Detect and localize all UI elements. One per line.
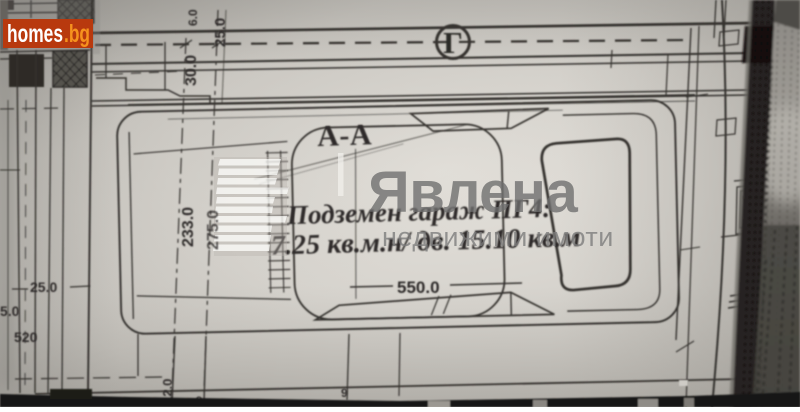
svg-text:homes: homes [7,20,63,48]
svg-text:А-А: А-А [317,118,373,153]
svg-text:25.0: 25.0 [212,18,229,47]
svg-text:5.0: 5.0 [0,303,20,319]
svg-text:6.0: 6.0 [186,9,200,26]
svg-text:9: 9 [341,386,348,400]
svg-text:.bg: .bg [64,20,90,48]
svg-text:550.0: 550.0 [397,278,440,297]
svg-text:Явлена: Явлена [368,160,578,225]
svg-text:30.0: 30.0 [183,55,200,86]
svg-text:Г: Г [443,25,463,60]
svg-text:275.0: 275.0 [205,210,222,250]
svg-text:233.0: 233.0 [180,207,197,247]
svg-text:520: 520 [14,329,38,345]
svg-text:недвижими имоти: недвижими имоти [382,222,614,252]
svg-text:25.0: 25.0 [30,279,57,295]
